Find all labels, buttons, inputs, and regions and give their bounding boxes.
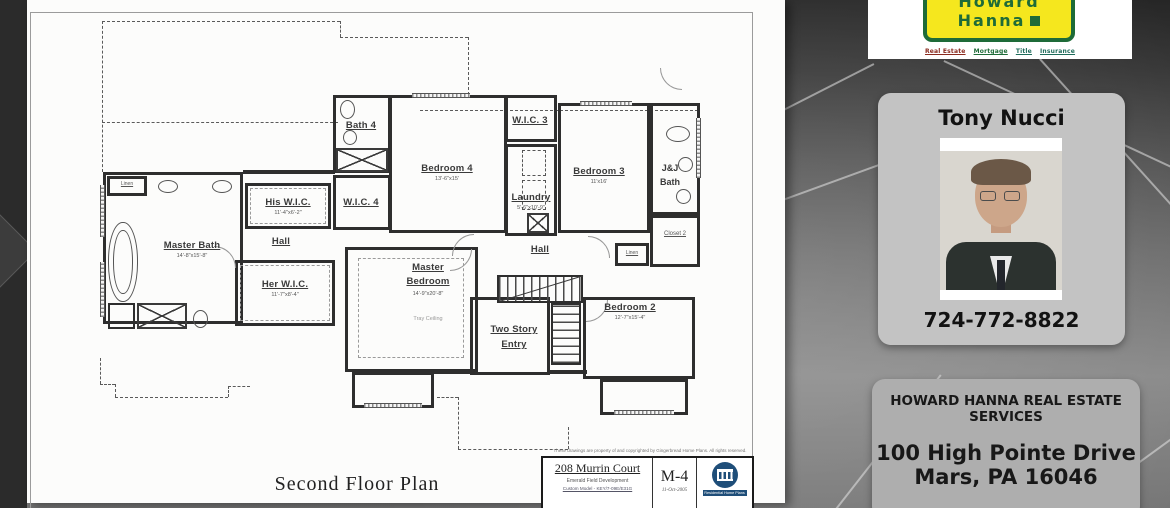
room-jj-bath: [650, 103, 700, 215]
agent-name: Tony Nucci: [878, 106, 1125, 130]
room-label-bedroom3: Bedroom 3: [573, 166, 624, 177]
room-label-hall-center: Hall: [531, 244, 549, 255]
room-label-closet2: Closet 2: [664, 231, 686, 237]
logo-text-top: Howard: [927, 0, 1071, 11]
room-note-tray-ceiling: Tray Ceiling: [413, 316, 442, 322]
toilet: [343, 130, 357, 145]
agent-photo: [940, 138, 1062, 300]
title-block-model: Custom Model - KEY/7-09E/E31G: [543, 486, 652, 491]
room-label-wic4: W.I.C. 4: [343, 197, 378, 208]
copyright-note: These drawings are property of and copyr…: [553, 448, 746, 453]
office-address-line2: Mars, PA 16046: [872, 465, 1140, 489]
room-closet2: [650, 215, 700, 267]
tagline-real-estate: Real Estate: [925, 48, 966, 55]
temple-icon: [717, 469, 733, 481]
door-arc: [588, 236, 610, 258]
window: [580, 101, 632, 106]
room-label-hall-left: Hall: [272, 236, 290, 247]
room-label-master-bedroom-1: Master: [412, 262, 444, 273]
room-label-jj-bath-2: Bath: [660, 177, 680, 187]
stairs-lower-run: [551, 303, 581, 365]
room-dims-her-wic: 11'-7"x8'-4": [271, 292, 298, 298]
window: [614, 410, 674, 415]
sink: [340, 100, 355, 119]
sink: [212, 180, 232, 193]
room-label-laundry: Laundry: [512, 192, 551, 203]
tagline-title: Title: [1016, 48, 1032, 55]
room-two-story-entry: [470, 297, 550, 375]
tagline-insurance: Insurance: [1040, 48, 1075, 55]
photo-glasses: [980, 191, 996, 201]
howard-hanna-logo: Howard Hanna: [923, 0, 1075, 42]
room-label-bedroom2: Bedroom 2: [604, 302, 655, 313]
room-label-linen-left: Linen: [121, 181, 133, 187]
room-label-his-wic: His W.I.C.: [265, 197, 310, 208]
room-dims-bedroom2: 12'-7"x15'-4": [615, 315, 646, 321]
room-label-wic3: W.I.C. 3: [512, 115, 547, 126]
shower: [137, 303, 187, 329]
sheet-number: M-4: [653, 468, 696, 486]
washer: [522, 150, 546, 176]
room-label-jj-bath-1: J&J: [662, 163, 679, 173]
sheet-date: 11-Oct-2005: [653, 488, 696, 493]
toilet: [666, 126, 690, 142]
office-company-line1: HOWARD HANNA REAL ESTATE: [872, 393, 1140, 409]
agent-card: Tony Nucci 724-772-8822: [878, 93, 1125, 345]
room-label-her-wic: Her W.I.C.: [262, 279, 308, 290]
room-label-bedroom4: Bedroom 4: [421, 163, 472, 174]
room-label-entry-2: Entry: [501, 339, 526, 350]
builder-logo-icon: [712, 462, 738, 488]
title-block: 208 Murrin Court Emerald Field Developme…: [541, 456, 754, 508]
builder-caption: Residential Home Plans: [703, 490, 747, 496]
brand-tagline: Real EstateMortgageTitleInsurance: [868, 48, 1132, 55]
room-dims-laundry: 5'-6"x10'-9": [517, 205, 545, 211]
room-label-entry-1: Two Story: [490, 324, 537, 335]
room-label-master-bedroom-2: Bedroom: [406, 276, 449, 287]
floorplan-sheet: Master Bath 14'-8"x15'-8" Linen His W.I.…: [27, 0, 785, 503]
sheet-title: Second Floor Plan: [275, 473, 440, 496]
floor-plan-drawing: Master Bath 14'-8"x15'-8" Linen His W.I.…: [0, 0, 785, 508]
toilet: [193, 310, 208, 328]
room-dims-bedroom3: 11'x16': [591, 179, 608, 185]
brand-logo-box: Howard Hanna Real EstateMortgageTitleIns…: [868, 0, 1132, 59]
office-card: HOWARD HANNA REAL ESTATE SERVICES 100 Hi…: [872, 379, 1140, 508]
closet-box: [108, 303, 135, 329]
tagline-mortgage: Mortgage: [974, 48, 1008, 55]
agent-phone: 724-772-8822: [878, 308, 1125, 332]
door-arc: [452, 234, 474, 256]
laundry-chute: [527, 213, 549, 233]
window: [696, 118, 701, 178]
title-block-address: 208 Murrin Court: [543, 461, 652, 476]
title-block-development: Emerald Field Development: [543, 478, 652, 484]
window: [364, 403, 422, 408]
room-dims-his-wic: 11'-4"x6'-2": [274, 210, 301, 216]
room-dims-bedroom4: 13'-6"x15': [435, 176, 459, 182]
shower: [336, 148, 388, 172]
room-label-bath4: Bath 4: [346, 120, 376, 131]
sink: [676, 189, 691, 204]
logo-text-bottom: Hanna: [958, 11, 1026, 30]
window: [412, 93, 470, 98]
window: [100, 185, 105, 237]
door-arc: [660, 68, 682, 90]
room-dims-master-bedroom: 14'-9"x20'-8": [413, 291, 444, 297]
office-company-line2: SERVICES: [872, 409, 1140, 425]
office-address-line1: 100 High Pointe Drive: [872, 441, 1140, 465]
listing-photo: Master Bath 14'-8"x15'-8" Linen His W.I.…: [0, 0, 1170, 508]
window: [100, 262, 105, 317]
room-label-master-bath: Master Bath: [164, 240, 221, 251]
sink: [678, 157, 693, 172]
room-dims-master-bath: 14'-8"x15'-8": [177, 253, 208, 259]
room-label-linen-right: Linen: [626, 250, 638, 256]
sink: [158, 180, 178, 193]
logo-square-icon: [1030, 16, 1040, 26]
